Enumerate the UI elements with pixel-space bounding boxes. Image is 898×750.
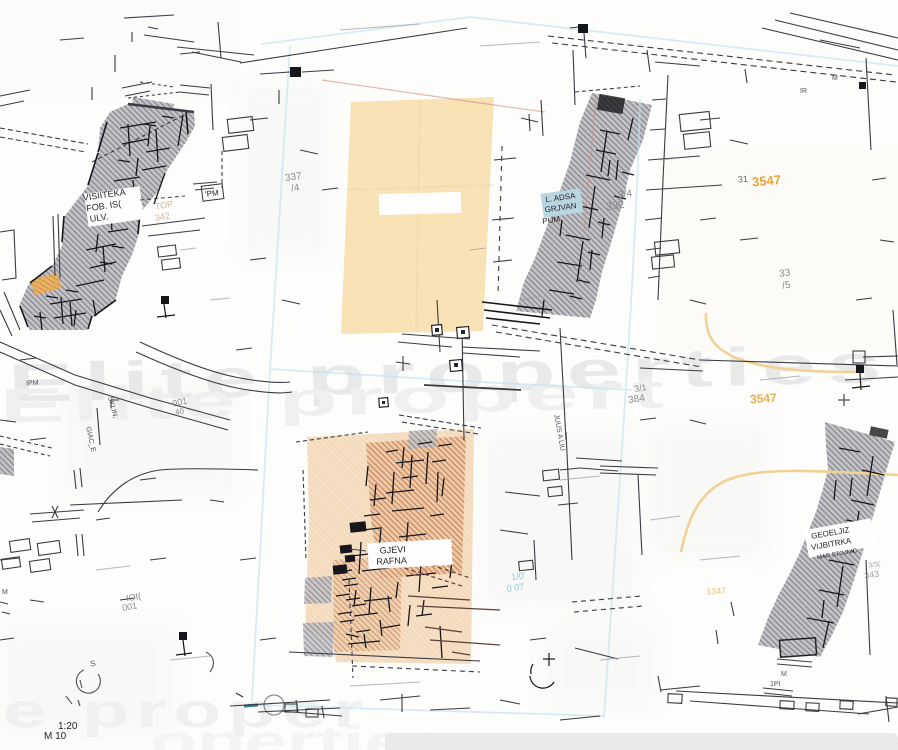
svg-text:332: 332 bbox=[605, 199, 625, 213]
svg-text:M: M bbox=[832, 75, 838, 82]
svg-text:343: 343 bbox=[864, 569, 880, 581]
svg-text:1/0': 1/0' bbox=[511, 570, 527, 582]
svg-text:IR: IR bbox=[800, 88, 807, 95]
svg-text:RAFNA: RAFNA bbox=[376, 555, 407, 567]
svg-text:3547: 3547 bbox=[750, 391, 778, 407]
svg-text:M: M bbox=[781, 671, 787, 678]
svg-text:3/1: 3/1 bbox=[633, 382, 647, 394]
svg-text:IPM: IPM bbox=[26, 380, 39, 388]
svg-text:GJEVI: GJEVI bbox=[380, 544, 407, 555]
svg-text:31: 31 bbox=[738, 174, 749, 185]
svg-text:M: M bbox=[2, 589, 8, 596]
svg-text:'PM: 'PM bbox=[205, 188, 220, 199]
svg-text:M 10: M 10 bbox=[44, 731, 67, 742]
svg-text:33: 33 bbox=[779, 267, 792, 280]
svg-text:1PI: 1PI bbox=[770, 681, 781, 688]
svg-text:1347: 1347 bbox=[706, 586, 727, 597]
svg-text:3547: 3547 bbox=[751, 172, 781, 189]
